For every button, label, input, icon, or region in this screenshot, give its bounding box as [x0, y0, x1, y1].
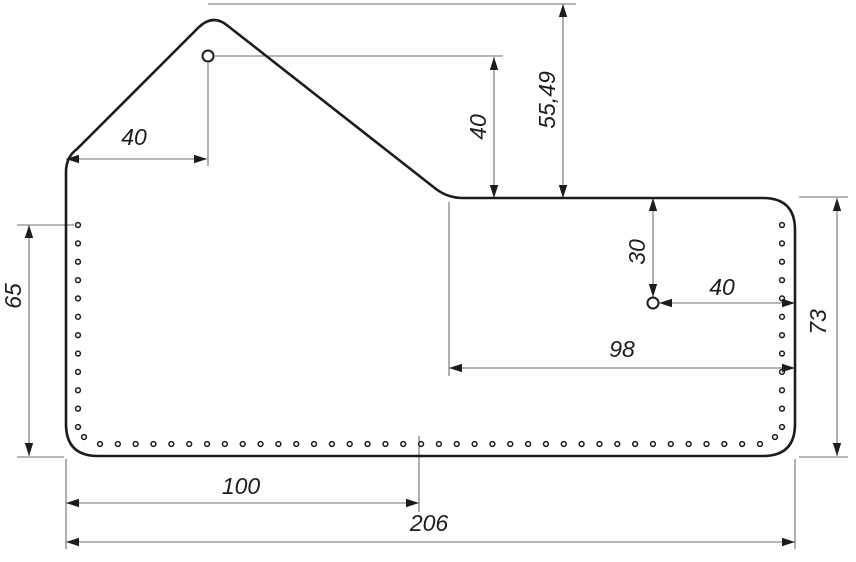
stitch-hole	[780, 241, 785, 246]
stitch-hole	[258, 442, 263, 447]
stitch-hole	[76, 259, 81, 264]
stitch-hole	[240, 442, 245, 447]
rivet-hole	[203, 51, 214, 62]
part-outline	[66, 20, 795, 456]
stitch-hole	[668, 442, 673, 447]
stitch-hole	[169, 442, 174, 447]
stitch-hole	[76, 425, 81, 430]
stitch-hole	[276, 442, 281, 447]
arrowhead	[449, 364, 462, 372]
stitch-hole	[76, 351, 81, 356]
stitch-hole	[544, 442, 549, 447]
stitch-hole	[76, 333, 81, 338]
stitch-hole	[115, 442, 120, 447]
dimension-label: 40	[709, 274, 735, 300]
stitch-hole	[780, 388, 785, 393]
stitch-hole	[98, 442, 103, 447]
stitch-hole	[686, 442, 691, 447]
stitch-hole	[82, 435, 87, 440]
stitch-hole	[222, 442, 227, 447]
stitch-hole	[758, 442, 763, 447]
arrowhead	[782, 538, 795, 546]
stitch-hole	[780, 333, 785, 338]
dimension-label: 65	[0, 283, 26, 309]
arrowhead	[649, 198, 657, 211]
stitch-hole	[76, 314, 81, 319]
dimension-label: 30	[624, 239, 650, 265]
stitch-hole	[780, 259, 785, 264]
stitch-hole	[780, 406, 785, 411]
drawing-canvas: 404055,496530409873100206	[0, 0, 856, 562]
stitch-hole	[780, 278, 785, 283]
stitch-hole	[76, 241, 81, 246]
arrowhead	[66, 499, 79, 507]
stitch-hole	[472, 442, 477, 447]
stitch-hole	[76, 278, 81, 283]
arrowhead	[66, 538, 79, 546]
stitch-hole	[151, 442, 156, 447]
dimension-label: 98	[609, 336, 635, 362]
arrowhead	[782, 364, 795, 372]
stitch-hole	[419, 442, 424, 447]
stitch-hole	[722, 442, 727, 447]
stitch-hole	[508, 442, 513, 447]
dimension-label: 73	[805, 309, 831, 335]
dimension-label: 40	[121, 124, 147, 150]
arrowhead	[490, 185, 498, 198]
stitch-hole	[780, 223, 785, 228]
stitch-hole	[76, 223, 81, 228]
stitch-hole	[773, 435, 778, 440]
stitch-hole	[490, 442, 495, 447]
arrowhead	[559, 185, 567, 198]
arrowhead	[559, 4, 567, 17]
arrowhead	[649, 284, 657, 297]
dimension-label: 55,49	[534, 71, 560, 129]
stitch-hole	[526, 442, 531, 447]
arrowhead	[782, 299, 795, 307]
stitch-hole	[205, 442, 210, 447]
stitch-hole	[780, 351, 785, 356]
stitch-hole	[133, 442, 138, 447]
arrowhead	[25, 225, 33, 238]
arrowhead	[194, 155, 207, 163]
dimension-label: 206	[409, 510, 449, 536]
stitch-hole	[615, 442, 620, 447]
rivet-hole	[648, 298, 659, 309]
stitch-hole	[651, 442, 656, 447]
stitch-hole	[187, 442, 192, 447]
stitch-hole	[401, 442, 406, 447]
stitch-hole	[597, 442, 602, 447]
stitch-hole	[294, 442, 299, 447]
stitch-hole	[76, 406, 81, 411]
dimension-label: 40	[465, 114, 491, 140]
stitch-hole	[704, 442, 709, 447]
arrowhead	[659, 299, 672, 307]
stitch-hole	[383, 442, 388, 447]
stitch-hole	[329, 442, 334, 447]
stitch-hole	[454, 442, 459, 447]
dimension-label: 100	[222, 473, 261, 499]
stitch-hole	[347, 442, 352, 447]
stitch-hole	[76, 388, 81, 393]
stitch-hole	[561, 442, 566, 447]
arrowhead	[833, 198, 841, 211]
stitch-hole	[740, 442, 745, 447]
stitch-hole	[780, 314, 785, 319]
stitch-hole	[633, 442, 638, 447]
stitch-hole	[76, 370, 81, 375]
arrowhead	[833, 443, 841, 456]
arrowhead	[406, 499, 419, 507]
technical-drawing: 404055,496530409873100206	[0, 0, 856, 562]
arrowhead	[490, 57, 498, 70]
stitch-hole	[780, 425, 785, 430]
stitch-hole	[312, 442, 317, 447]
arrowhead	[25, 443, 33, 456]
stitch-hole	[76, 296, 81, 301]
stitch-hole	[437, 442, 442, 447]
stitch-hole	[579, 442, 584, 447]
stitch-hole	[365, 442, 370, 447]
